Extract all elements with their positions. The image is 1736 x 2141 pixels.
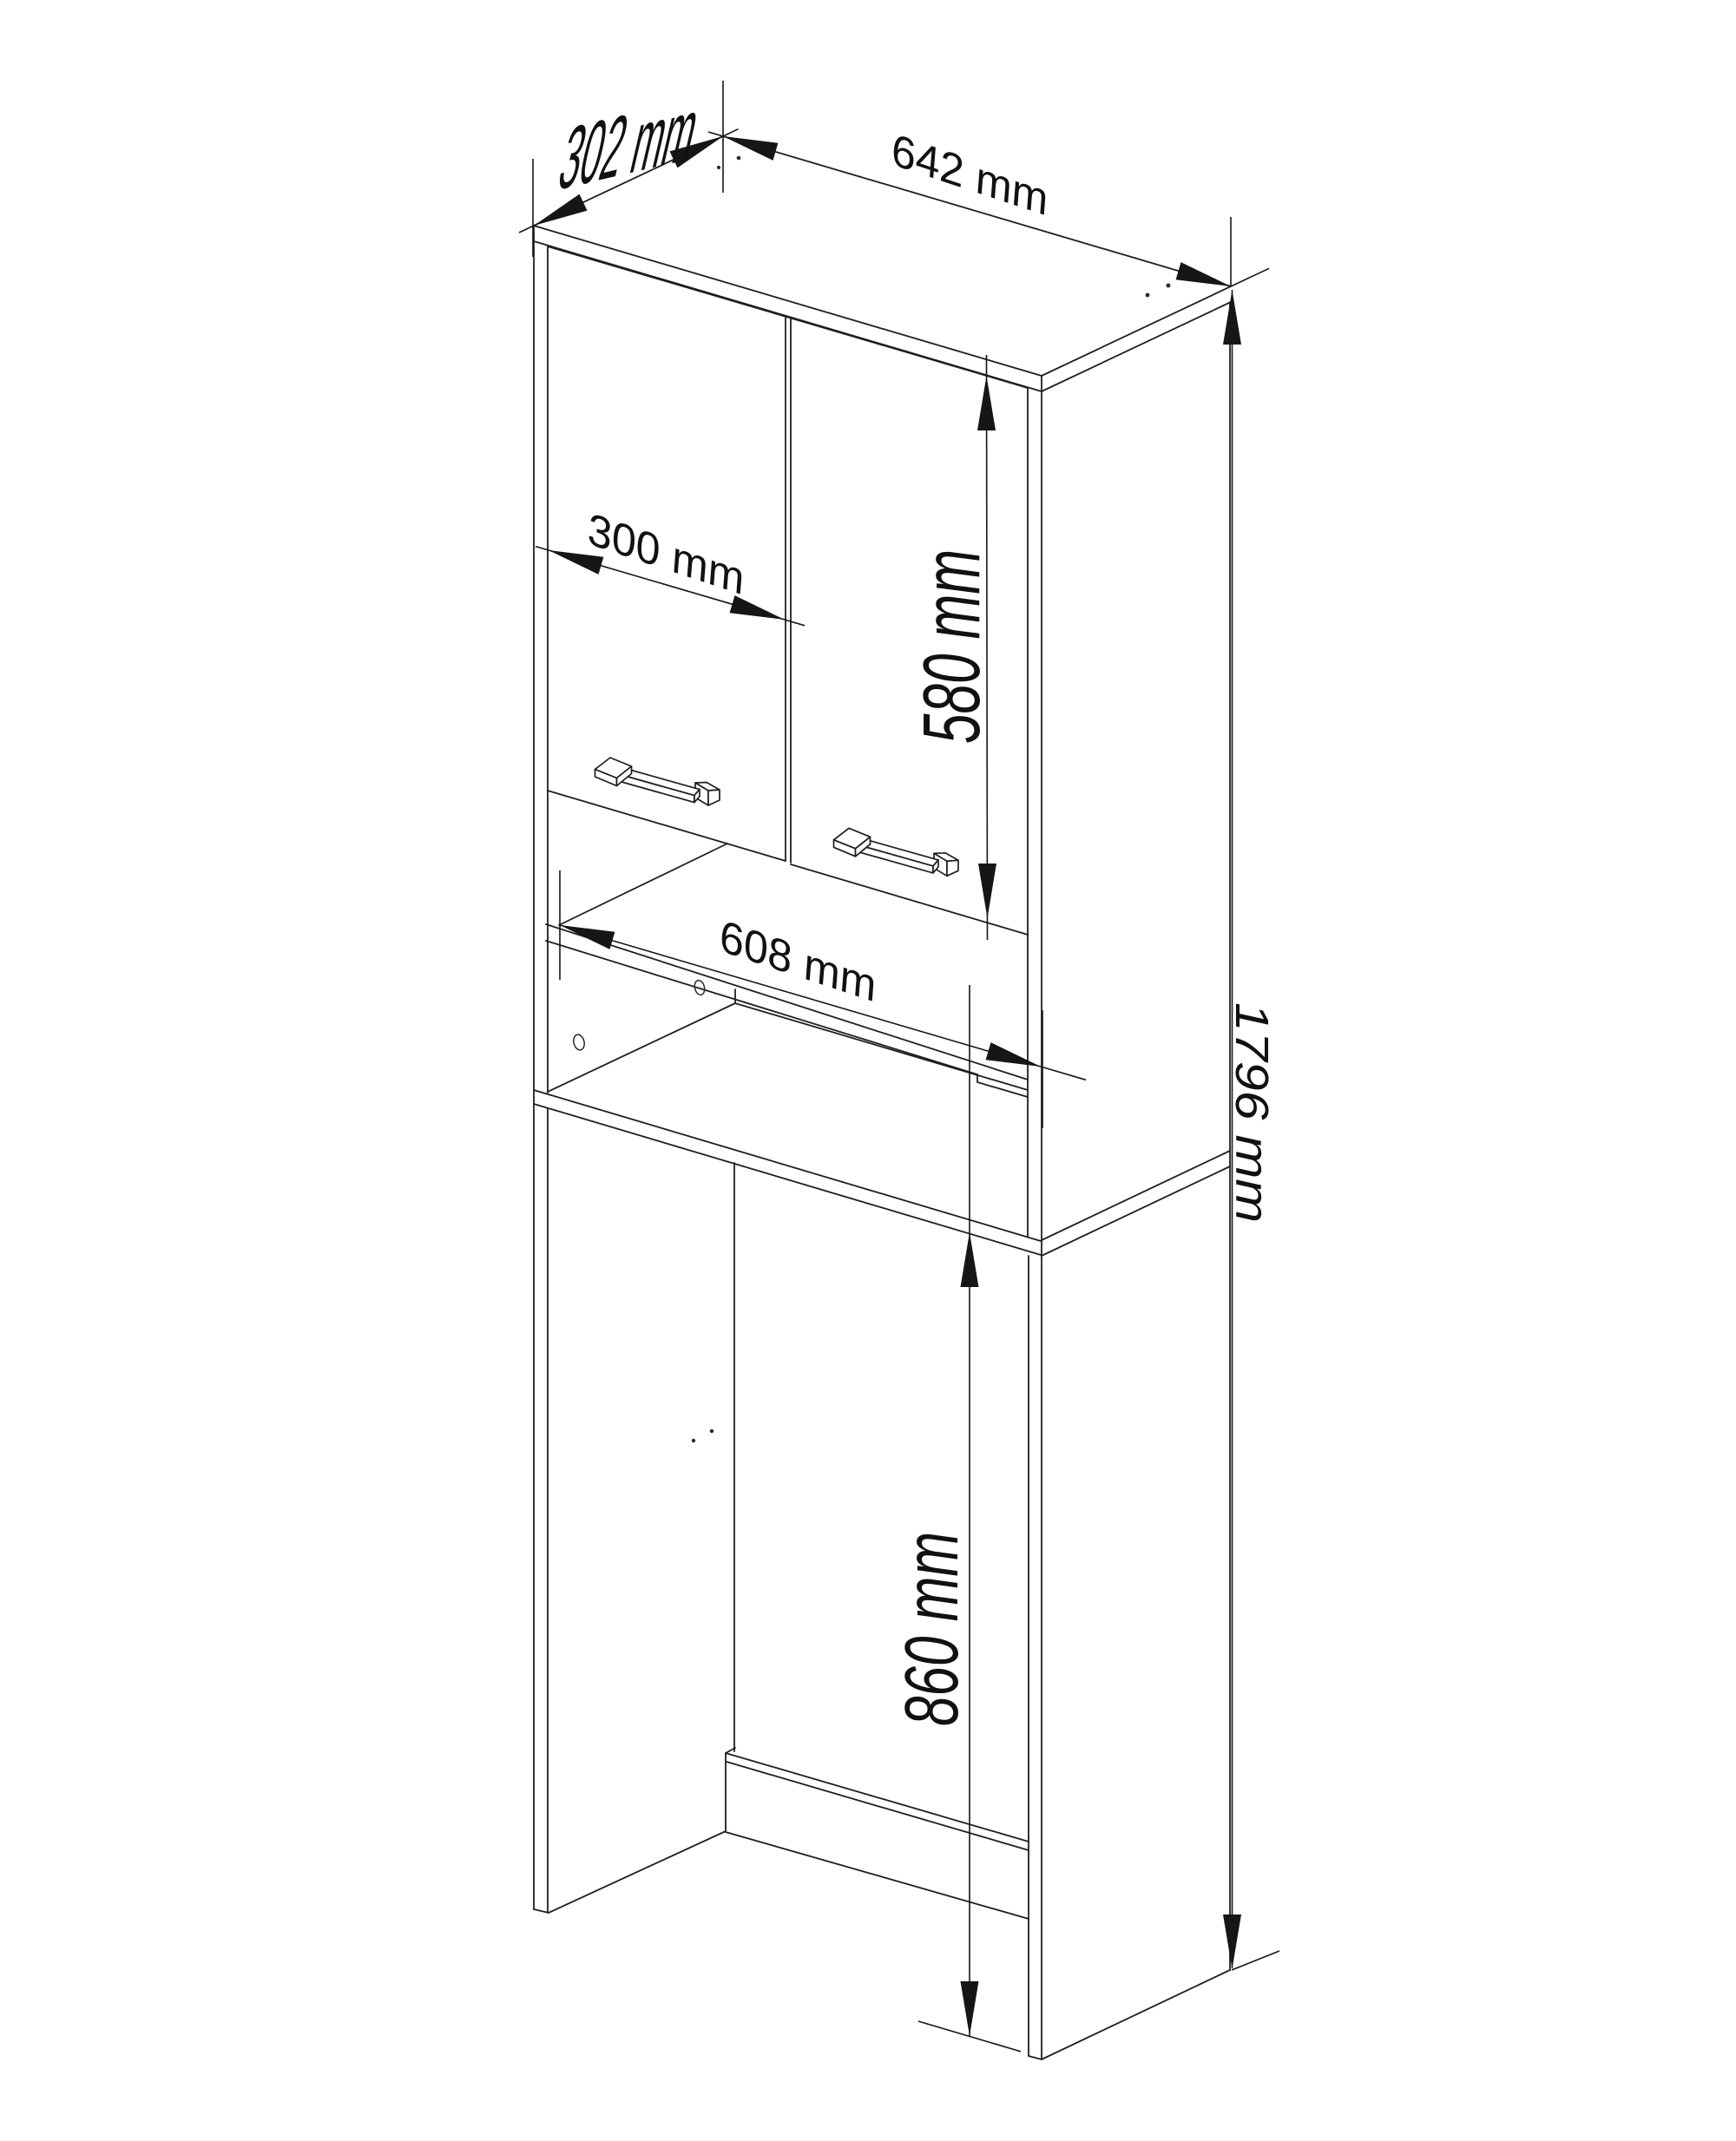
svg-text:580 mm: 580 mm [905, 549, 996, 744]
svg-text:860 mm: 860 mm [890, 1532, 974, 1726]
svg-text:1796 mm: 1796 mm [1226, 1002, 1278, 1223]
